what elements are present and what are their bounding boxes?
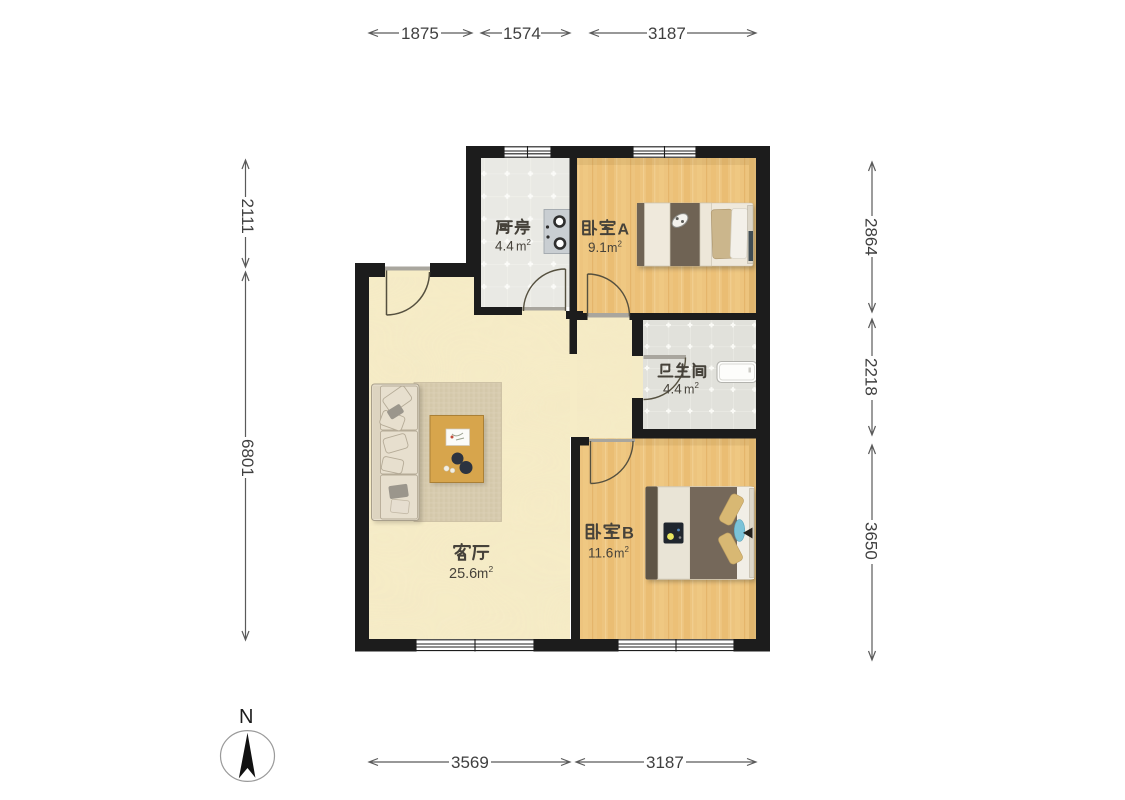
svg-text:25.6: 25.6 xyxy=(449,566,477,582)
svg-text:3187: 3187 xyxy=(646,753,684,772)
svg-text:B: B xyxy=(622,525,634,543)
svg-text:2: 2 xyxy=(695,381,700,390)
svg-text:2864: 2864 xyxy=(862,218,881,256)
svg-text:6801: 6801 xyxy=(238,439,257,477)
svg-text:1875: 1875 xyxy=(401,24,439,43)
svg-text:11.6: 11.6 xyxy=(588,546,613,561)
svg-text:m: m xyxy=(684,383,694,397)
svg-text:m: m xyxy=(477,566,488,581)
svg-text:N: N xyxy=(239,706,253,728)
svg-text:2: 2 xyxy=(489,564,494,574)
svg-text:3650: 3650 xyxy=(862,522,881,560)
svg-text:2: 2 xyxy=(527,238,532,247)
svg-text:A: A xyxy=(618,222,630,239)
svg-text:m: m xyxy=(607,241,617,255)
svg-text:4.4: 4.4 xyxy=(663,382,682,397)
svg-text:2: 2 xyxy=(618,240,623,249)
svg-text:m: m xyxy=(516,240,526,254)
svg-text:3187: 3187 xyxy=(648,24,686,43)
svg-text:1574: 1574 xyxy=(503,24,541,43)
svg-text:4.4: 4.4 xyxy=(495,239,514,254)
svg-text:9.1: 9.1 xyxy=(588,240,607,255)
svg-text:3569: 3569 xyxy=(451,753,489,772)
svg-text:2218: 2218 xyxy=(862,358,881,396)
svg-text:m: m xyxy=(614,547,624,561)
svg-text:2111: 2111 xyxy=(238,199,257,234)
svg-text:2: 2 xyxy=(625,545,630,554)
